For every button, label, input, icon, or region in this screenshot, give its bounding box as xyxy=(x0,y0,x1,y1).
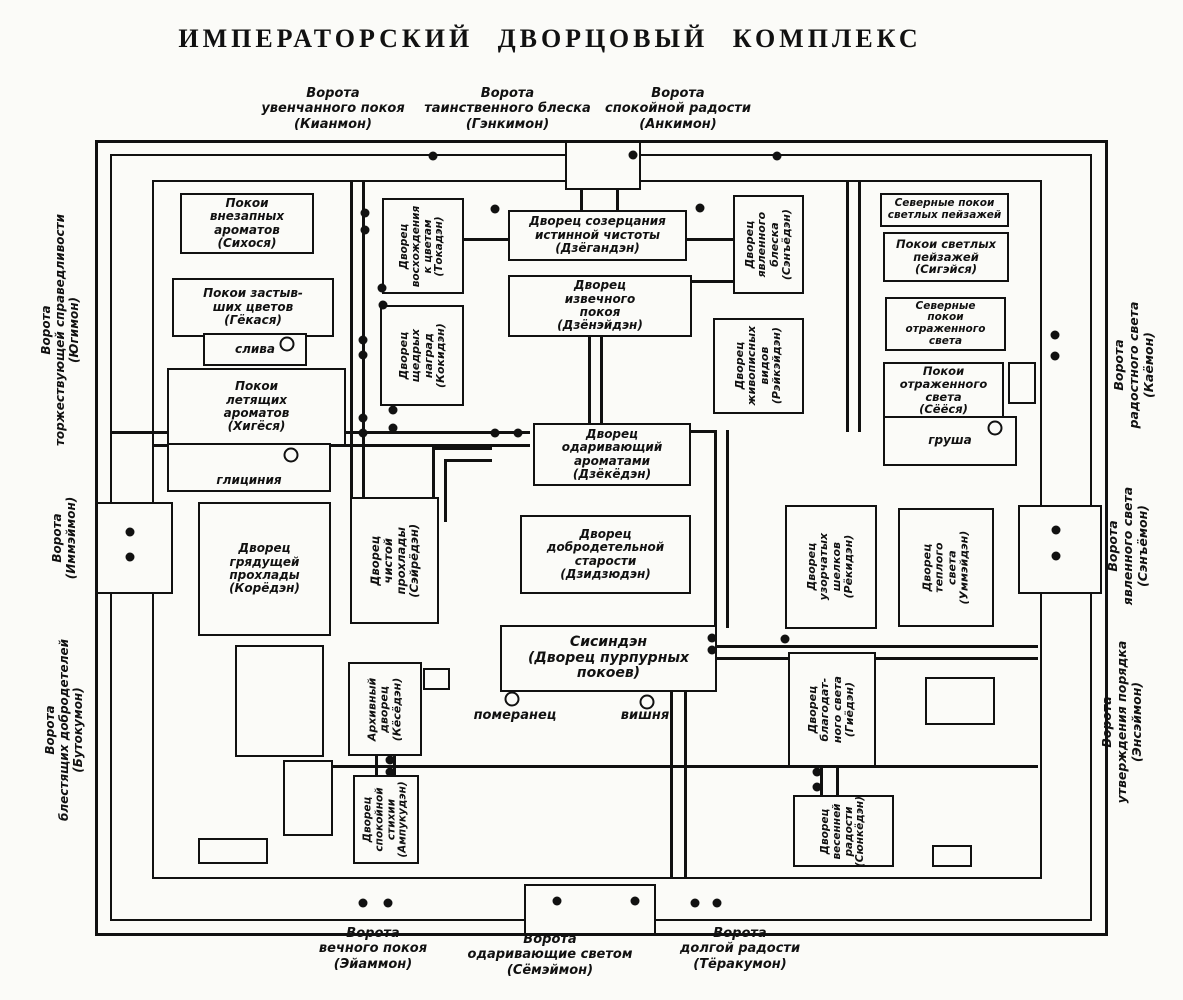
corridor-line xyxy=(820,763,823,795)
building-label: Дворец явленного блеска (Сэнъёдэн) xyxy=(744,209,793,280)
tree-plot-pear: груша xyxy=(883,416,1017,466)
corridor-line xyxy=(846,182,849,432)
wall-dot xyxy=(429,152,438,161)
building-north-shoyosha: Северные покои отраженного света xyxy=(885,297,1006,351)
building-shoyosha: Покои отраженного света (Сёёся) xyxy=(883,362,1004,419)
wall-dot xyxy=(1052,526,1061,535)
building-label: Покои застыв- ших цветов (Гёкася) xyxy=(203,287,303,327)
gate-ankimon: Ворота спокойной радости (Анкимон) xyxy=(598,86,758,132)
wall-dot xyxy=(386,768,395,777)
wall-dot xyxy=(126,553,135,562)
wall-dot xyxy=(126,528,135,537)
corridor-line xyxy=(432,447,492,450)
gate-butokumon: Ворота блестящих добродетелей (Бутокумон… xyxy=(43,625,85,835)
building-koryoden: Дворец грядущей прохлады (Корёдэн) xyxy=(198,502,331,636)
building-giyoden: Дворец благодат- ного света (Гиёдэн) xyxy=(788,652,876,767)
corridor-line xyxy=(836,763,839,795)
wall-dot xyxy=(386,756,395,765)
building-label: Покои светлых пейзажей (Сигэйся) xyxy=(896,238,996,277)
corridor-line xyxy=(683,238,733,241)
building-label: Дворец одаривающий ароматами (Дзёкёдэн) xyxy=(562,428,662,482)
tree-label-cherry: вишня xyxy=(585,708,705,723)
corridor-line xyxy=(714,430,717,628)
corridor-line xyxy=(350,182,353,500)
unlabeled-structure xyxy=(925,677,995,725)
unlabeled-structure xyxy=(283,760,333,836)
wall-dot xyxy=(378,284,387,293)
wall-dot xyxy=(359,351,368,360)
building-label: Дворец весенней радости (Сюнкёдэн) xyxy=(820,796,867,867)
corridor-line xyxy=(460,238,508,241)
building-gyokasha: Покои застыв- ших цветов (Гёкася) xyxy=(172,278,334,337)
wall-dot xyxy=(781,635,790,644)
tree-label: груша xyxy=(928,434,972,447)
gate-structure-left xyxy=(96,502,173,594)
building-tokaden: Дворец восхождения к цветам (Токадэн) xyxy=(382,198,464,294)
building-joneiden: Дворец извечного покоя (Дзёнэйдэн) xyxy=(508,275,692,337)
building-ryokiden: Дворец узорчатых шелков (Рёкидэн) xyxy=(785,505,877,629)
wall-dot xyxy=(629,151,638,160)
gate-yugimon: Ворота торжествующей справедливости (Юги… xyxy=(39,205,81,455)
wall-dot xyxy=(379,301,388,310)
gate-structure-right xyxy=(1018,505,1102,594)
wall-dot xyxy=(359,414,368,423)
tree-label: глициния xyxy=(216,474,281,490)
wall-dot xyxy=(696,204,705,213)
unlabeled-structure xyxy=(423,668,450,690)
gate-shomeimon: Ворота одаривающие светом (Сёмэймон) xyxy=(460,932,640,978)
tree-marker xyxy=(284,448,299,463)
wall-dot xyxy=(773,152,782,161)
wall-dot xyxy=(1052,552,1061,561)
wall-dot xyxy=(631,897,640,906)
corridor-line xyxy=(858,182,861,432)
gate-enseimon: Ворота утверждения порядка (Энсэймон) xyxy=(1100,620,1144,825)
corridor-line xyxy=(444,459,447,522)
building-unmeiden: Дворец теплого света (Уммэйдэн) xyxy=(898,508,994,627)
gate-kianmon: Ворота увенчанного покоя (Кианмон) xyxy=(258,86,408,132)
building-label: Дворец спокойной стихии (Ампукудэн) xyxy=(363,781,410,857)
tree-marker xyxy=(505,692,520,707)
building-label: Дворец благодат- ного света (Гиёдэн) xyxy=(807,676,856,743)
wall-dot xyxy=(384,899,393,908)
palace-plan: ИМПЕРАТОРСКИЙ ДВОРЦОВЫЙ КОМПЛЕКС Покои в… xyxy=(0,0,1183,1000)
building-kyoshoden: Архивный дворец (Кёсёдэн) xyxy=(348,662,422,756)
wall-dot xyxy=(491,429,500,438)
building-label: Дворец живописных видов (Рэйкэйдэн) xyxy=(734,326,783,406)
building-shigeisha: Покои светлых пейзажей (Сигэйся) xyxy=(883,232,1009,282)
building-label: Дворец восхождения к цветам (Токадэн) xyxy=(400,205,447,286)
gate-kayomon: Ворота радостного света (Каёмон) xyxy=(1112,273,1156,458)
building-label: Покои отраженного света (Сёёся) xyxy=(900,365,988,417)
building-label: Сисиндэн (Дворец пурпурных покоев) xyxy=(528,635,689,682)
wall-dot xyxy=(1051,352,1060,361)
wall-dot xyxy=(708,646,717,655)
building-joganden: Дворец созерцания истинной чистоты (Дзёг… xyxy=(508,210,687,261)
corridor-line xyxy=(444,459,492,462)
gate-senyomon: Ворота явленного света (Сэнъёмон) xyxy=(1106,459,1150,634)
gate-immeimon: Ворота (Иммэймон) xyxy=(50,468,78,608)
wall-dot xyxy=(713,899,722,908)
tree-plot-wisteria: глициния xyxy=(167,443,331,492)
corridor-line xyxy=(713,645,1038,648)
building-label: Дворец созерцания истинной чистоты (Дзёг… xyxy=(529,215,666,255)
building-label: Покои летящих ароматов (Хигёся) xyxy=(224,380,290,434)
gate-eianmon: Ворота вечного покоя (Эйаммон) xyxy=(298,926,448,972)
wall-dot xyxy=(514,429,523,438)
building-senyoden: Дворец явленного блеска (Сэнъёдэн) xyxy=(733,195,804,294)
building-label: Дворец щедрых наград (Кокидэн) xyxy=(397,323,446,388)
wall-dot xyxy=(389,424,398,433)
corridor-line xyxy=(600,333,603,425)
tree-plot-plum: слива xyxy=(203,333,307,366)
building-label: Северные покои светлых пейзажей xyxy=(888,198,1002,222)
tree-marker xyxy=(988,421,1003,436)
building-seiryoden: Дворец чистой прохлады (Сэйрёдэн) xyxy=(350,497,439,624)
wall-dot xyxy=(553,897,562,906)
unlabeled-structure xyxy=(198,838,268,864)
tree-label: слива xyxy=(235,343,275,356)
building-jokyoden: Дворец одаривающий ароматами (Дзёкёдэн) xyxy=(533,423,691,486)
tree-marker xyxy=(280,337,295,352)
building-label: Дворец извечного покоя (Дзёнэйдэн) xyxy=(557,279,643,333)
building-label: Дворец добродетельной старости (Дзидзюдэ… xyxy=(547,528,664,582)
corridor-line xyxy=(330,765,1038,768)
corridor-line xyxy=(726,430,729,628)
building-kokiden: Дворец щедрых наград (Кокидэн) xyxy=(380,305,464,406)
gate-structure-bottom xyxy=(524,884,656,935)
wall-dot xyxy=(813,768,822,777)
corridor-line xyxy=(588,333,591,425)
gate-chorakumon: Ворота долгой радости (Тёракумон) xyxy=(655,926,825,972)
building-label: Дворец теплого света (Уммэйдэн) xyxy=(921,531,970,605)
gate-genkimon: Ворота таинственного блеска (Гэнкимон) xyxy=(420,86,595,132)
wall-dot xyxy=(813,783,822,792)
building-higyosha: Покои летящих ароматов (Хигёся) xyxy=(167,368,346,446)
wall-dot xyxy=(359,899,368,908)
diagram-title: ИМПЕРАТОРСКИЙ ДВОРЦОВЫЙ КОМПЛЕКС xyxy=(0,24,1100,54)
wall-dot xyxy=(359,336,368,345)
building-reikeiden: Дворец живописных видов (Рэйкэйдэн) xyxy=(713,318,804,414)
wall-dot xyxy=(359,429,368,438)
building-sihosya: Покои внезапных ароматов (Сихося) xyxy=(180,193,314,254)
unlabeled-structure xyxy=(235,645,324,757)
wall-dot xyxy=(708,634,717,643)
building-label: Архивный дворец (Кёсёдэн) xyxy=(367,677,404,741)
wall-dot xyxy=(389,406,398,415)
building-shunkoden: Дворец весенней радости (Сюнкёдэн) xyxy=(793,795,894,867)
wall-dot xyxy=(361,226,370,235)
wall-dot xyxy=(491,205,500,214)
building-label: Покои внезапных ароматов (Сихося) xyxy=(210,197,284,251)
building-jijuden: Дворец добродетельной старости (Дзидзюдэ… xyxy=(520,515,691,594)
building-label: Северные покои отраженного света xyxy=(906,301,986,348)
building-label: Дворец чистой прохлады (Сэйрёдэн) xyxy=(369,518,421,603)
unlabeled-structure xyxy=(932,845,972,867)
building-label: Дворец грядущей прохлады (Корёдэн) xyxy=(229,542,300,596)
building-shishinden: Сисиндэн (Дворец пурпурных покоев) xyxy=(500,625,717,692)
building-north-shigeisha: Северные покои светлых пейзажей xyxy=(880,193,1009,227)
building-label: Дворец узорчатых шелков (Рёкидэн) xyxy=(806,533,855,600)
building-anpukuden: Дворец спокойной стихии (Ампукудэн) xyxy=(353,775,419,864)
gate-structure-top xyxy=(565,141,641,190)
wall-dot xyxy=(691,899,700,908)
wall-dot xyxy=(1051,331,1060,340)
tree-label-orange: померанец xyxy=(455,708,575,723)
unlabeled-structure xyxy=(1008,362,1036,404)
wall-dot xyxy=(361,209,370,218)
